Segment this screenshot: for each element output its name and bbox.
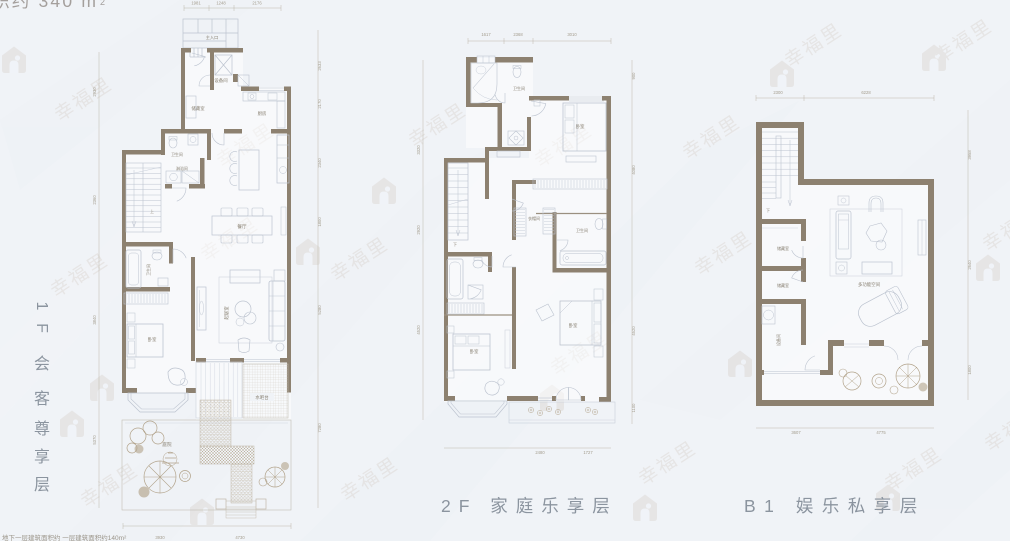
svg-text:淋浴间: 淋浴间	[176, 166, 188, 171]
svg-text:卫生间: 卫生间	[146, 264, 151, 276]
svg-text:客: 客	[34, 390, 50, 408]
svg-text:衣帽间: 衣帽间	[528, 215, 540, 221]
svg-text:储藏室: 储藏室	[777, 282, 789, 288]
svg-text:3958: 3958	[967, 150, 972, 160]
svg-text:2930: 2930	[92, 87, 97, 97]
svg-text:1617: 1617	[481, 32, 491, 37]
svg-text:积约 340 m: 积约 340 m	[0, 0, 98, 11]
svg-text:尊: 尊	[34, 420, 50, 438]
svg-text:水吧台: 水吧台	[255, 394, 269, 401]
svg-text:4520: 4520	[416, 325, 421, 335]
svg-text:4080: 4080	[631, 165, 636, 175]
svg-text:900: 900	[631, 72, 636, 80]
svg-text:1800: 1800	[967, 365, 972, 375]
svg-text:2: 2	[100, 0, 105, 7]
svg-text:1800: 1800	[317, 217, 322, 227]
svg-text:2368: 2368	[513, 32, 523, 37]
svg-text:起居室: 起居室	[223, 306, 230, 320]
svg-text:厨房: 厨房	[258, 110, 267, 117]
svg-text:5370: 5370	[92, 435, 97, 445]
svg-text:会: 会	[34, 355, 50, 373]
svg-text:储藏室: 储藏室	[191, 105, 205, 112]
svg-text:下: 下	[453, 243, 457, 247]
svg-text:4730: 4730	[235, 535, 245, 540]
svg-text:2633: 2633	[317, 61, 322, 71]
svg-text:4520: 4520	[631, 326, 636, 336]
svg-text:主入口: 主入口	[206, 34, 219, 40]
svg-text:卫生间: 卫生间	[576, 227, 588, 233]
svg-text:2170: 2170	[317, 99, 322, 109]
svg-text:1981: 1981	[191, 1, 201, 6]
svg-text:餐厅: 餐厅	[237, 223, 247, 230]
svg-text:上: 上	[150, 209, 154, 214]
svg-text:2920: 2920	[416, 225, 421, 235]
svg-text:6228: 6228	[861, 90, 871, 95]
svg-text:3010: 3010	[567, 32, 577, 37]
svg-text:2640: 2640	[967, 260, 972, 270]
svg-text:3320: 3320	[416, 145, 421, 155]
svg-text:储藏室: 储藏室	[777, 245, 789, 251]
svg-text:3930: 3930	[155, 535, 165, 540]
svg-text:3607: 3607	[791, 430, 801, 435]
svg-text:B1 娱乐私享层: B1 娱乐私享层	[744, 496, 926, 516]
svg-text:1: 1	[33, 302, 50, 311]
svg-text:7280: 7280	[317, 423, 322, 433]
svg-text:享: 享	[34, 448, 50, 466]
svg-text:2176: 2176	[252, 1, 262, 6]
svg-text:2340: 2340	[317, 158, 322, 168]
svg-text:F: F	[33, 323, 50, 333]
svg-text:卫生间: 卫生间	[171, 152, 183, 157]
svg-text:1248: 1248	[216, 1, 226, 6]
svg-text:5280: 5280	[317, 305, 322, 315]
svg-text:设备间: 设备间	[775, 334, 781, 346]
svg-text:层: 层	[34, 477, 50, 494]
svg-text:卫生间: 卫生间	[513, 85, 525, 91]
svg-text:庭院: 庭院	[162, 441, 172, 448]
svg-text:卧室: 卧室	[148, 336, 157, 343]
svg-text:2300: 2300	[773, 90, 783, 95]
svg-text:多功能空间: 多功能空间	[858, 281, 880, 288]
svg-text:设备间: 设备间	[214, 77, 227, 84]
svg-text:1727: 1727	[583, 450, 593, 455]
svg-text:卧室: 卧室	[470, 348, 479, 355]
svg-text:地下一层建筑面积约 一层建筑面积约140m²: 地下一层建筑面积约 一层建筑面积约140m²	[2, 533, 127, 541]
svg-text:卧室: 卧室	[569, 322, 578, 329]
svg-text:4775: 4775	[876, 430, 886, 435]
svg-text:下: 下	[766, 209, 770, 213]
svg-text:2F 家庭乐享层: 2F 家庭乐享层	[441, 496, 618, 516]
svg-text:2360: 2360	[92, 195, 97, 205]
svg-text:1100: 1100	[631, 403, 636, 413]
svg-text:3840: 3840	[92, 315, 97, 325]
svg-text:2480: 2480	[535, 450, 545, 455]
